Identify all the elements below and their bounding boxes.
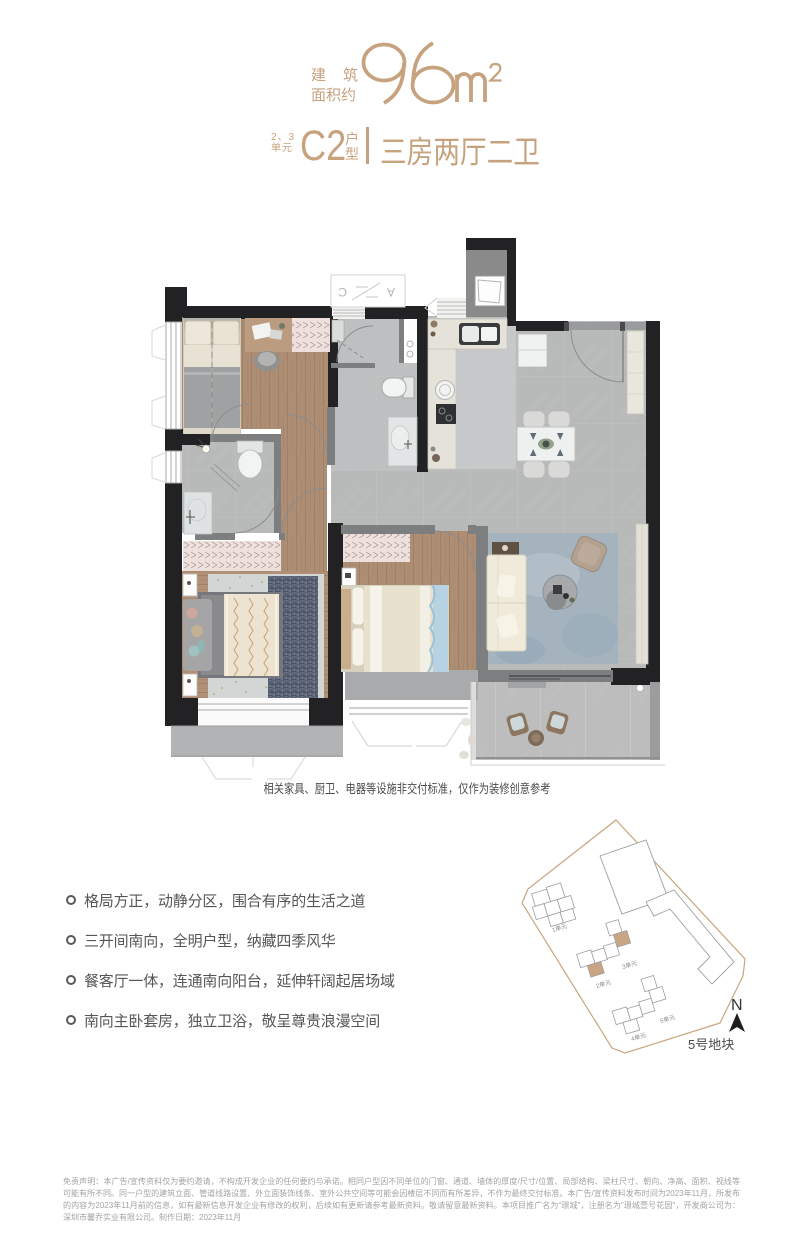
svg-text:5单元: 5单元 <box>659 1013 676 1025</box>
svg-text:2单元: 2单元 <box>595 978 612 990</box>
svg-text:N: N <box>731 997 743 1014</box>
svg-text:4单元: 4单元 <box>630 1031 647 1043</box>
svg-text:5号地块: 5号地块 <box>688 1037 734 1052</box>
svg-text:A: A <box>387 285 395 299</box>
svg-text:3单元: 3单元 <box>621 959 638 971</box>
svg-text:C: C <box>338 285 347 299</box>
